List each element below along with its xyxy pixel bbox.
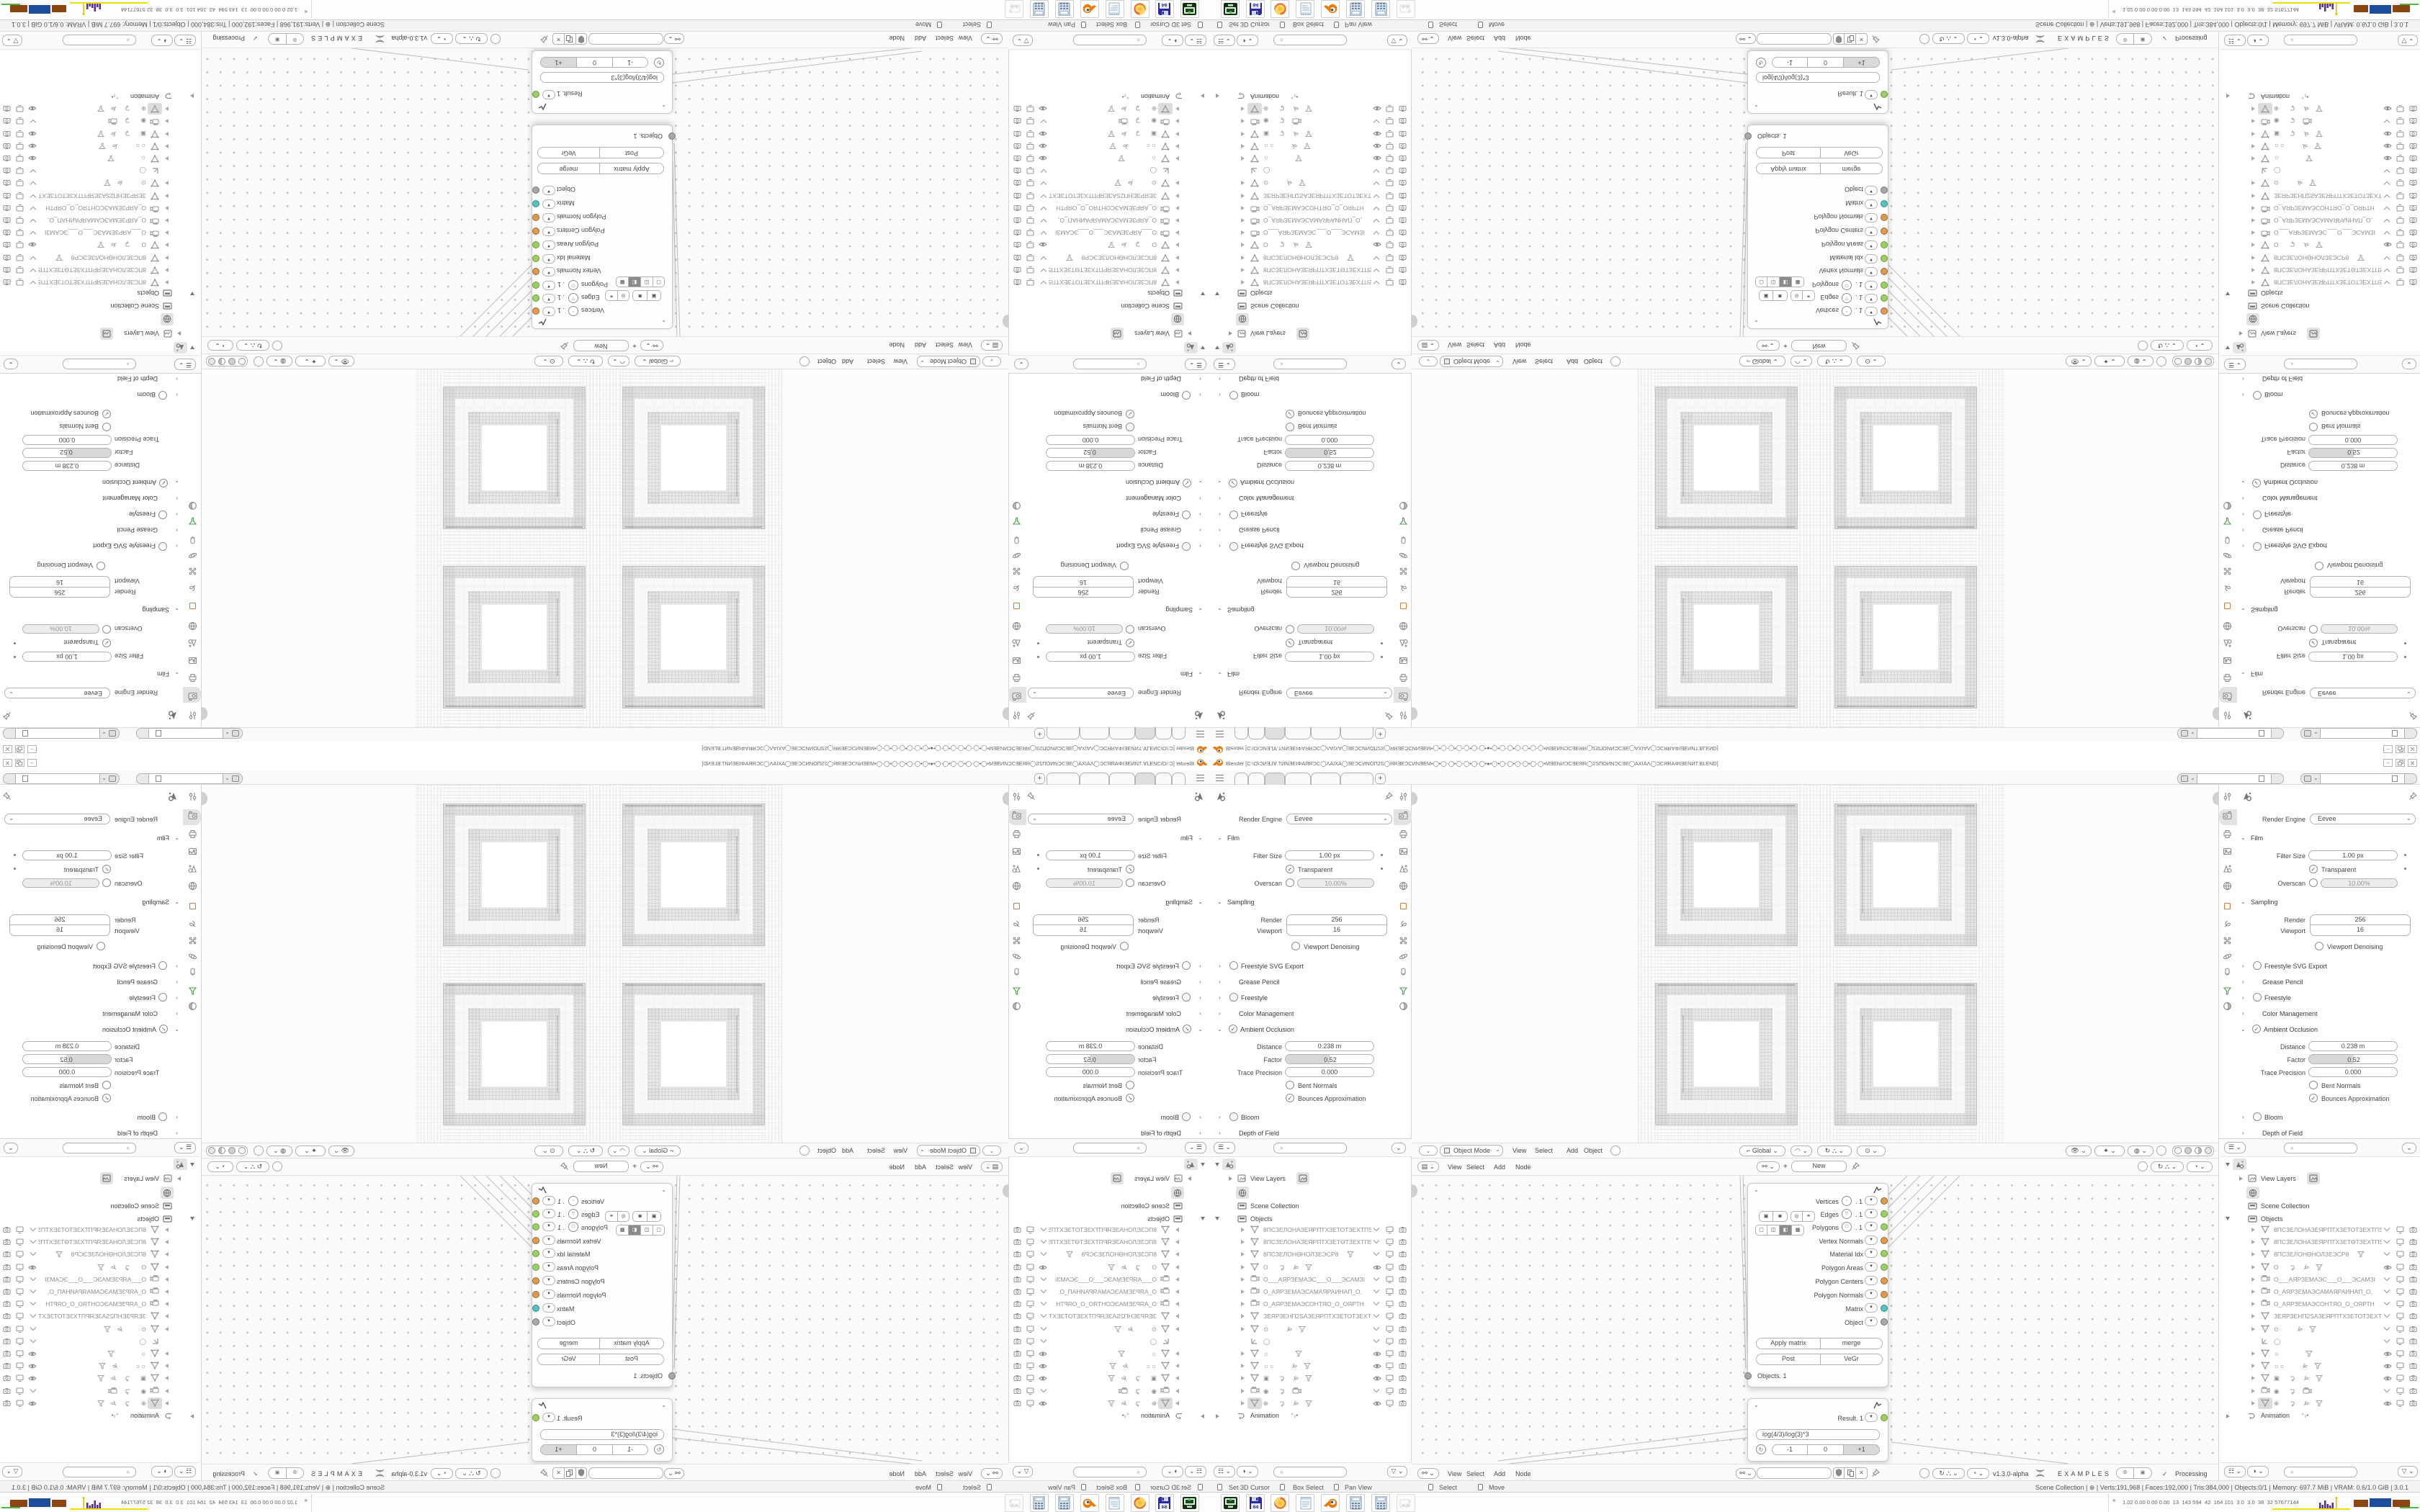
svg-text:64: 64 xyxy=(1253,1505,1259,1510)
svg-text:64: 64 xyxy=(1162,2,1168,7)
svg-text:64: 64 xyxy=(1162,1505,1168,1510)
svg-text:64: 64 xyxy=(1253,2,1259,7)
